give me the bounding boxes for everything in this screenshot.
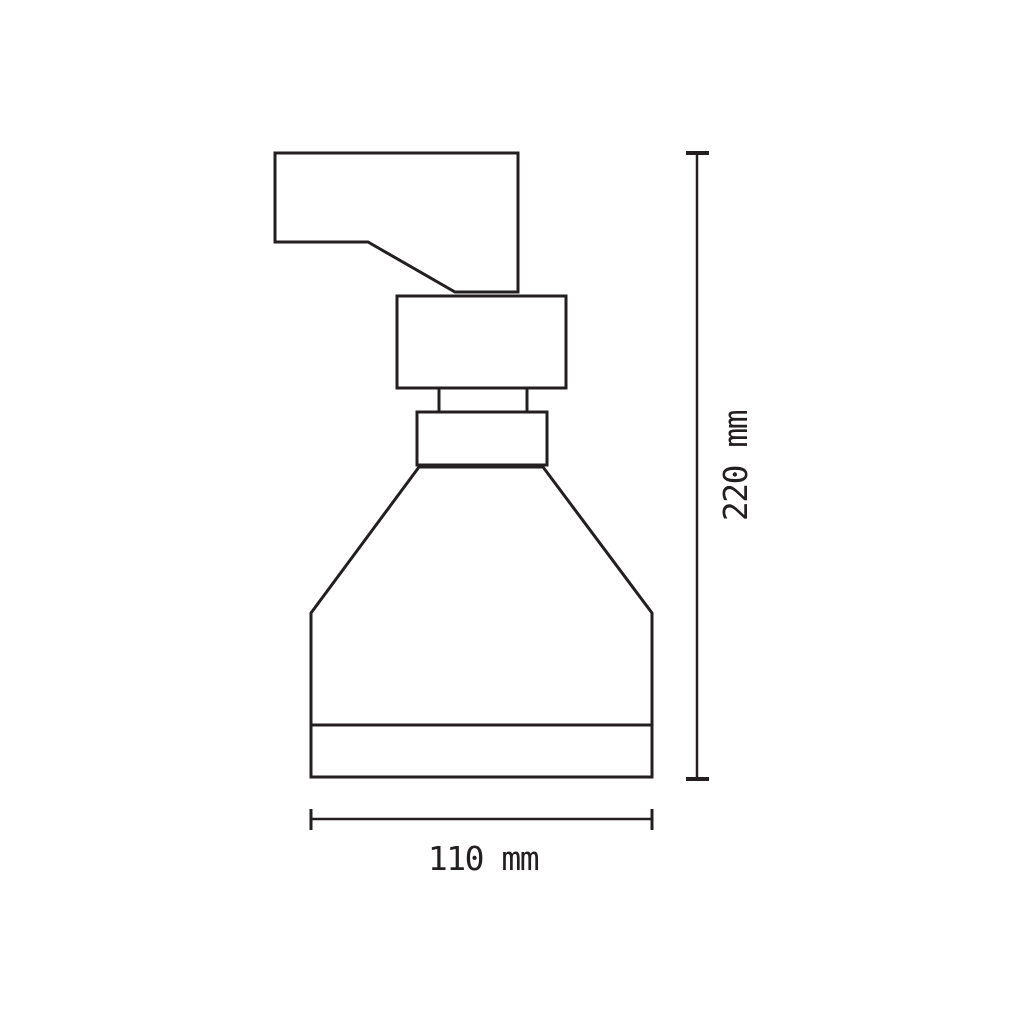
trigger-handle-outline bbox=[275, 153, 518, 292]
product-outline bbox=[275, 153, 652, 777]
pump-head-outline bbox=[397, 296, 566, 388]
bottle-body-outline bbox=[311, 467, 652, 777]
cap-ring-outline bbox=[417, 412, 547, 465]
height-dimension: 220 mm bbox=[686, 153, 755, 779]
width-dimension-label: 110 mm bbox=[428, 839, 539, 878]
neck-collar-outline bbox=[439, 388, 527, 412]
technical-drawing: 220 mm 110 mm bbox=[0, 0, 1024, 1024]
drawing-canvas: 220 mm 110 mm bbox=[0, 0, 1024, 1024]
height-dimension-label: 220 mm bbox=[716, 410, 755, 521]
width-dimension: 110 mm bbox=[311, 809, 652, 878]
